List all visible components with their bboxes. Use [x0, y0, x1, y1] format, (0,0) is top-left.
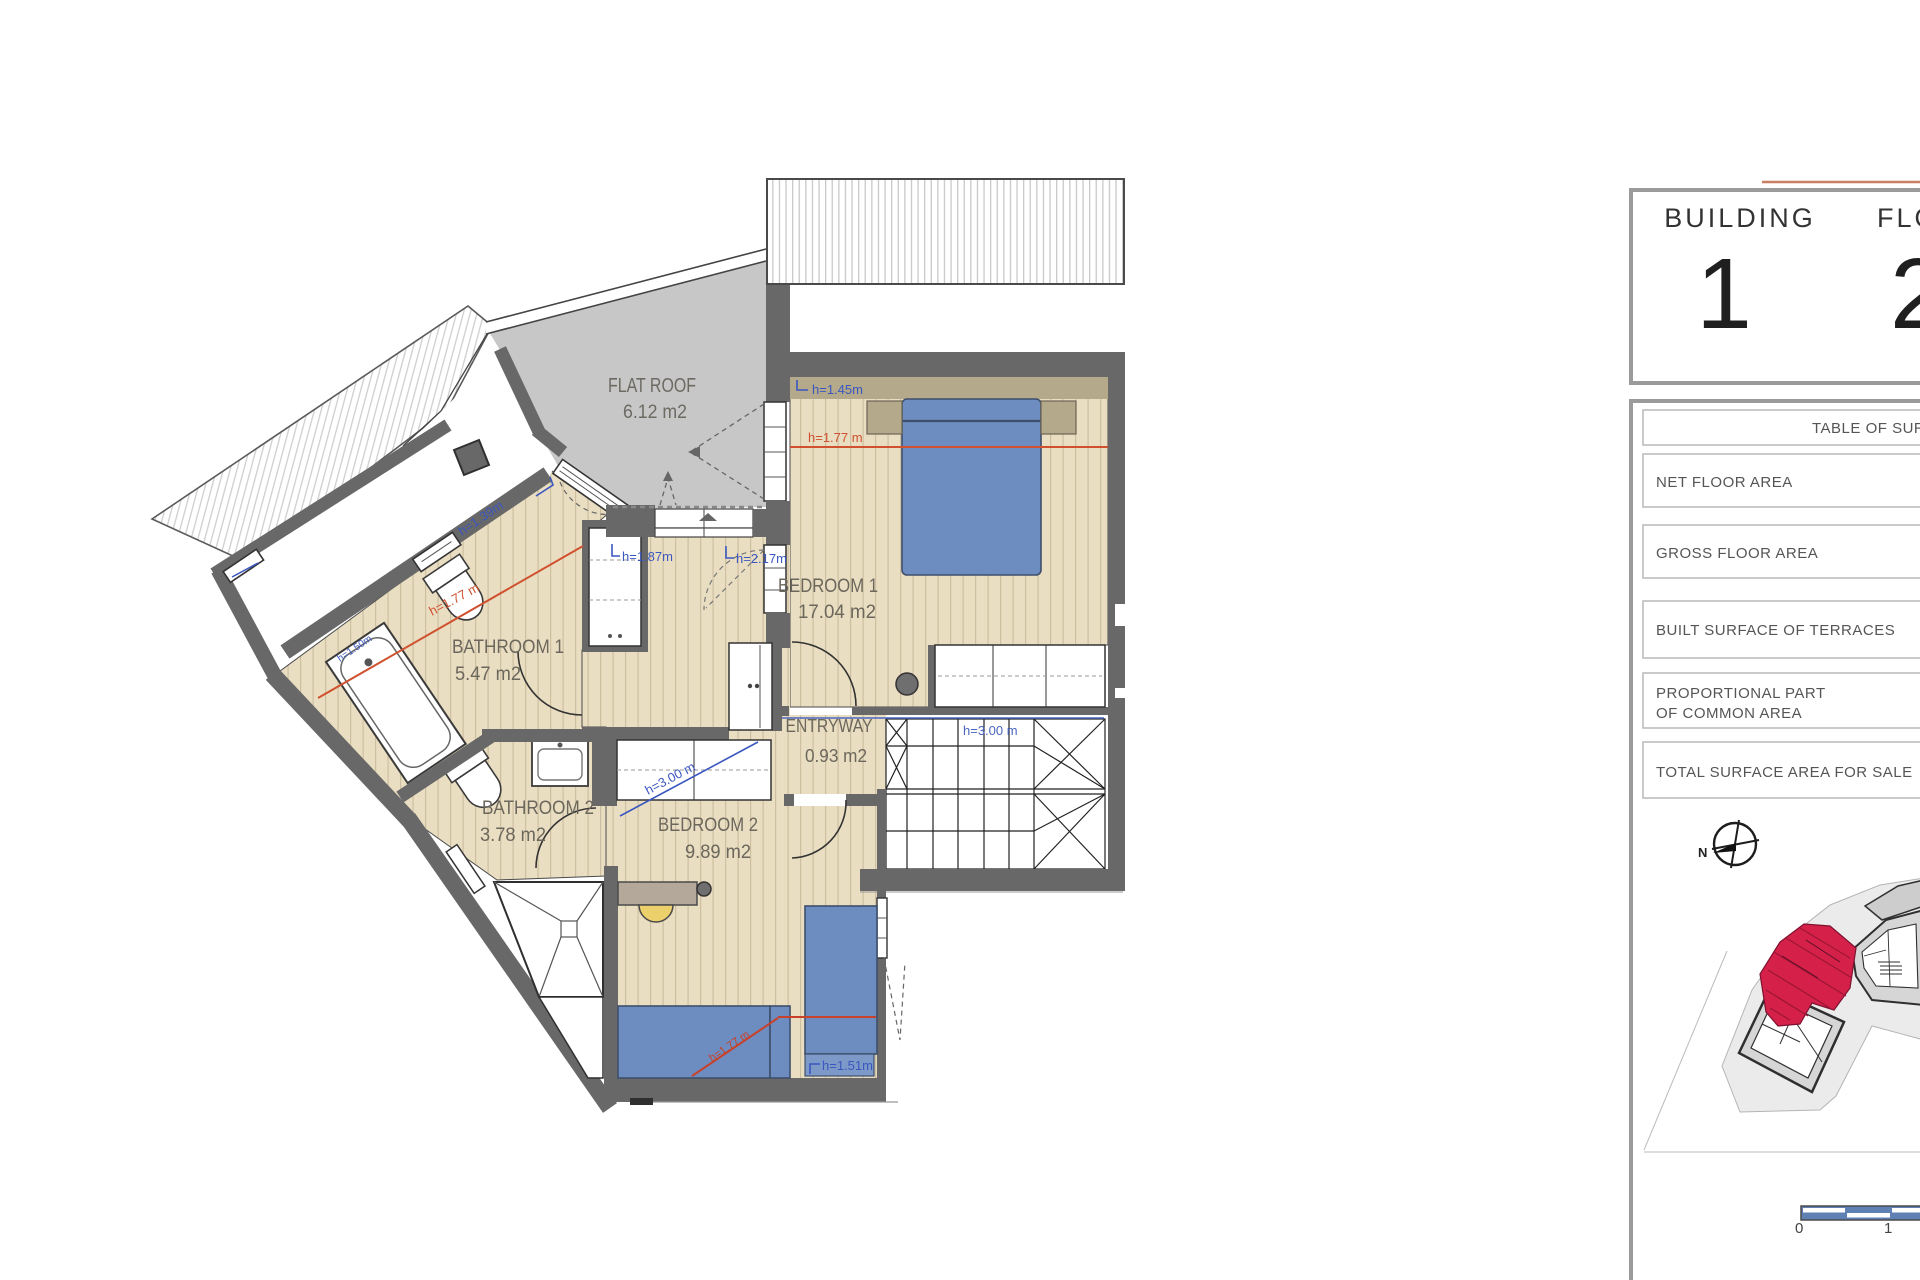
- svg-text:OF COMMON AREA: OF COMMON AREA: [1656, 705, 1802, 722]
- svg-text:17.04 m2: 17.04 m2: [798, 602, 876, 623]
- svg-text:ENTRYWAY: ENTRYWAY: [786, 716, 873, 736]
- svg-text:BATHROOM 1: BATHROOM 1: [452, 637, 564, 658]
- svg-text:h=3.00 m: h=3.00 m: [963, 723, 1018, 738]
- svg-text:TABLE OF SURFACES: TABLE OF SURFACES: [1812, 420, 1920, 437]
- svg-text:0.93 m2: 0.93 m2: [805, 746, 867, 766]
- svg-text:PROPORTIONAL PART: PROPORTIONAL PART: [1656, 685, 1826, 702]
- svg-text:h=1.51m: h=1.51m: [822, 1058, 873, 1073]
- svg-text:FLAT ROOF: FLAT ROOF: [608, 375, 696, 397]
- svg-text:2: 2: [1890, 238, 1920, 350]
- svg-text:h=1.45m: h=1.45m: [812, 382, 863, 397]
- svg-text:BUILT SURFACE OF TERRACES: BUILT SURFACE OF TERRACES: [1656, 622, 1895, 639]
- svg-text:N: N: [1698, 845, 1707, 860]
- svg-text:h=2.17m: h=2.17m: [736, 551, 787, 566]
- svg-text:TOTAL SURFACE AREA FOR SALE: TOTAL SURFACE AREA FOR SALE: [1656, 764, 1913, 781]
- svg-text:5.47 m2: 5.47 m2: [455, 664, 521, 685]
- svg-text:1: 1: [1884, 1220, 1892, 1237]
- svg-text:BEDROOM 2: BEDROOM 2: [658, 815, 758, 836]
- svg-text:h=1.87m: h=1.87m: [622, 549, 673, 564]
- svg-text:6.12 m2: 6.12 m2: [623, 402, 687, 423]
- svg-text:0: 0: [1795, 1220, 1803, 1237]
- svg-text:1: 1: [1696, 238, 1752, 350]
- svg-text:NET FLOOR AREA: NET FLOOR AREA: [1656, 474, 1793, 491]
- svg-text:BATHROOM 2: BATHROOM 2: [482, 798, 594, 819]
- svg-text:FLOOR: FLOOR: [1877, 203, 1920, 233]
- svg-text:GROSS FLOOR AREA: GROSS FLOOR AREA: [1656, 545, 1818, 562]
- svg-text:9.89 m2: 9.89 m2: [685, 842, 751, 863]
- svg-text:3.78 m2: 3.78 m2: [480, 825, 546, 846]
- svg-text:BUILDING: BUILDING: [1664, 203, 1816, 233]
- svg-text:BEDROOM 1: BEDROOM 1: [778, 576, 878, 597]
- svg-text:h=1.77 m: h=1.77 m: [808, 430, 863, 445]
